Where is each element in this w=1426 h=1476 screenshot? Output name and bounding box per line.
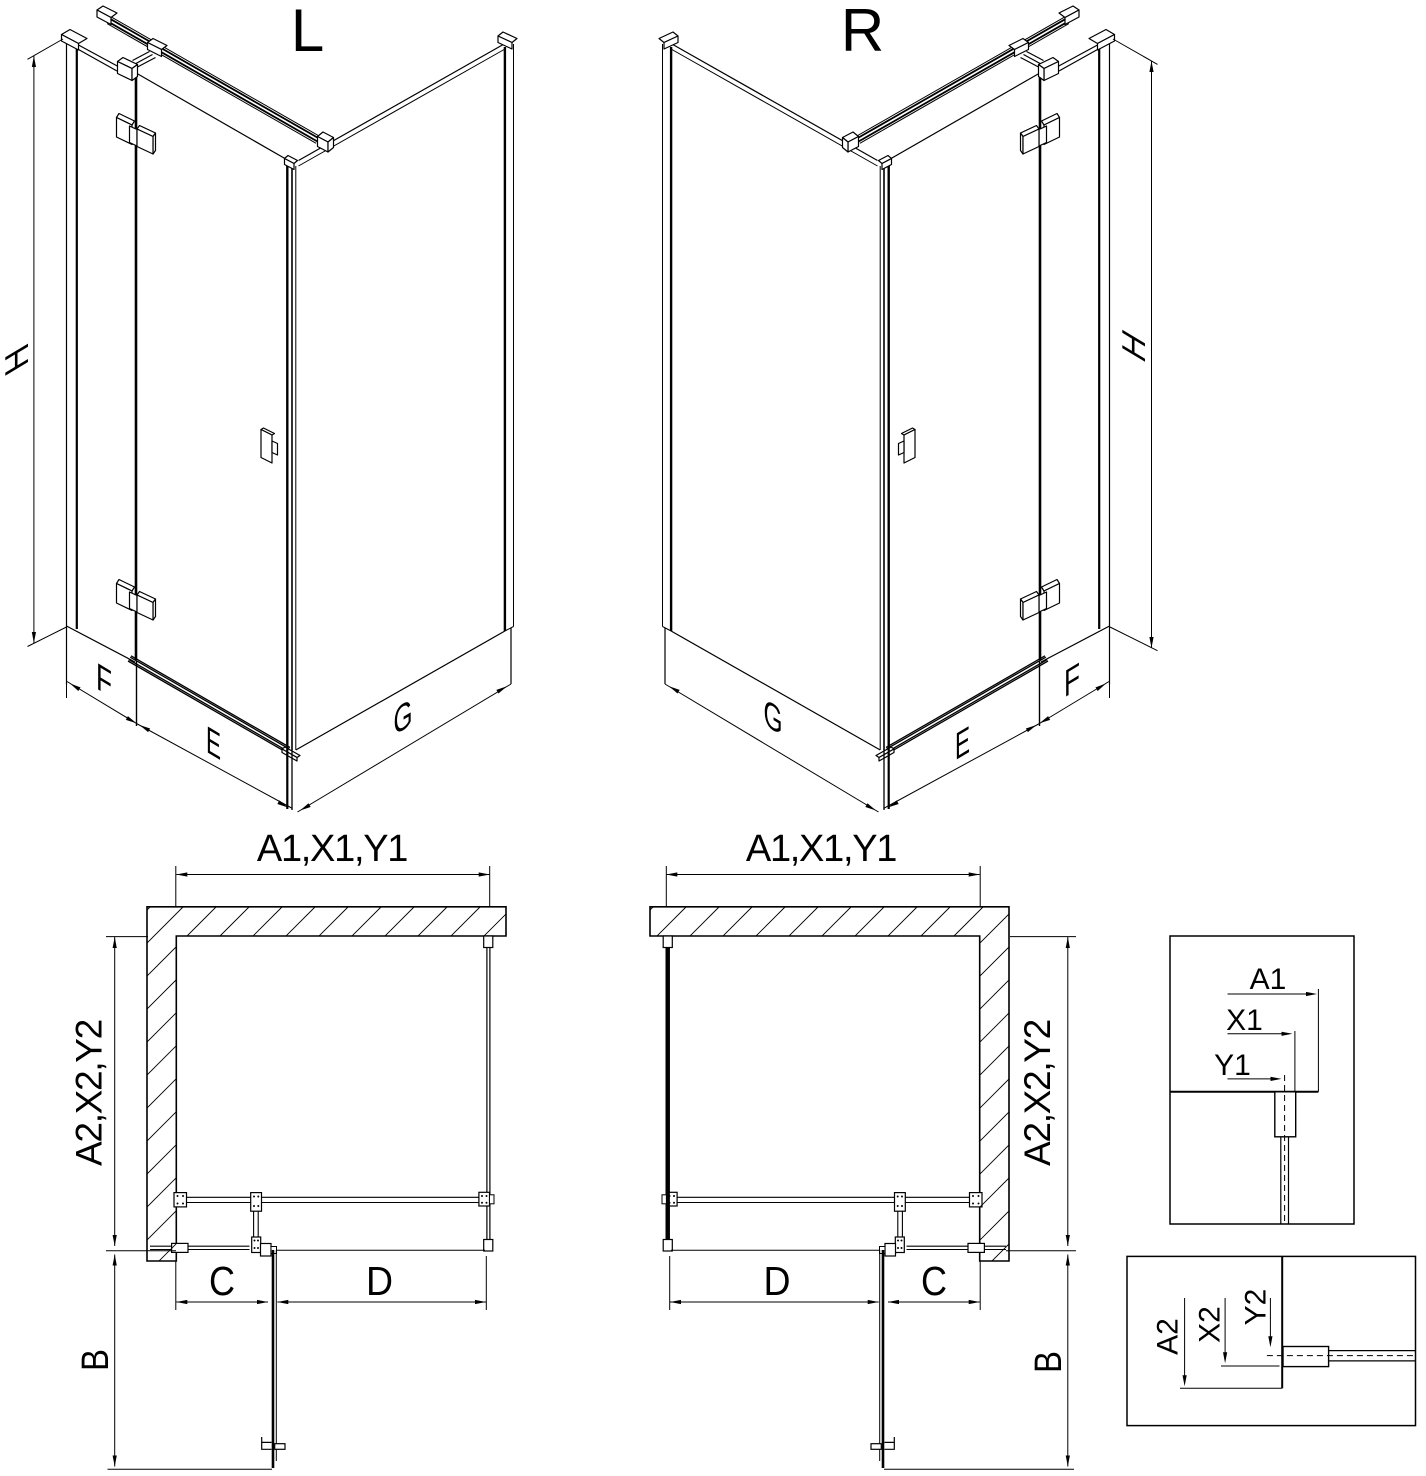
svg-text:D: D	[764, 1258, 791, 1304]
svg-text:D: D	[366, 1258, 393, 1304]
svg-text:Y1: Y1	[1214, 1049, 1251, 1082]
svg-text:A1,X1,Y1: A1,X1,Y1	[257, 828, 407, 870]
svg-text:X2: X2	[1194, 1306, 1227, 1343]
svg-text:R: R	[841, 0, 884, 64]
svg-text:A2,X2,Y2: A2,X2,Y2	[69, 1020, 110, 1166]
svg-text:A1,X1,Y1: A1,X1,Y1	[746, 828, 896, 870]
svg-text:A1: A1	[1250, 963, 1287, 996]
svg-text:C: C	[921, 1258, 947, 1304]
svg-text:A2,X2,Y2: A2,X2,Y2	[1017, 1020, 1058, 1166]
svg-text:E: E	[955, 717, 970, 768]
svg-text:L: L	[291, 0, 324, 64]
svg-text:B: B	[75, 1349, 117, 1371]
svg-text:Y2: Y2	[1240, 1289, 1273, 1326]
svg-text:X1: X1	[1226, 1004, 1263, 1037]
svg-text:A2: A2	[1152, 1318, 1185, 1355]
svg-text:B: B	[1028, 1351, 1070, 1373]
svg-text:E: E	[206, 717, 221, 768]
svg-text:C: C	[209, 1258, 235, 1304]
